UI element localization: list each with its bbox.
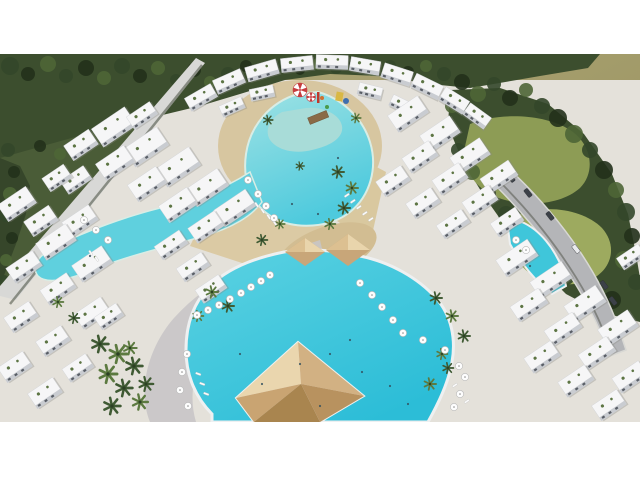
tree-blob bbox=[54, 148, 66, 160]
swimmer bbox=[261, 383, 263, 385]
tree-blob bbox=[565, 125, 583, 143]
swimmer bbox=[389, 385, 391, 387]
white-umbrella bbox=[184, 402, 191, 409]
tree-blob bbox=[624, 228, 640, 244]
tree-blob bbox=[487, 77, 501, 91]
white-umbrella bbox=[356, 279, 363, 286]
swimmer bbox=[89, 255, 91, 257]
white-umbrella bbox=[399, 329, 406, 336]
white-umbrella bbox=[247, 283, 254, 290]
tree-blob bbox=[502, 90, 518, 106]
swimmer bbox=[337, 157, 339, 159]
tree-blob bbox=[78, 60, 94, 76]
tree-blob bbox=[420, 60, 432, 72]
swimmer bbox=[529, 265, 531, 267]
swimmer bbox=[319, 405, 321, 407]
tree-blob bbox=[6, 232, 18, 244]
swimmer bbox=[317, 213, 319, 215]
white-umbrella bbox=[178, 368, 185, 375]
tree-blob bbox=[0, 254, 12, 266]
white-umbrella bbox=[419, 336, 426, 343]
tree-blob bbox=[617, 203, 635, 221]
swimmer bbox=[349, 339, 351, 341]
white-umbrella bbox=[389, 316, 396, 323]
tree-blob bbox=[114, 58, 130, 74]
white-umbrella bbox=[176, 386, 183, 393]
white-umbrella bbox=[104, 236, 111, 243]
tree-blob bbox=[608, 182, 624, 198]
white-umbrella bbox=[257, 277, 264, 284]
white-umbrella bbox=[461, 373, 468, 380]
swimmer bbox=[407, 403, 409, 405]
tree-blob bbox=[582, 142, 598, 158]
white-umbrella bbox=[204, 306, 211, 313]
white-umbrella bbox=[80, 216, 87, 223]
white-umbrella bbox=[226, 295, 233, 302]
tree-blob bbox=[549, 109, 567, 127]
white-umbrella bbox=[270, 214, 277, 221]
swimmer bbox=[291, 203, 293, 205]
white-umbrella bbox=[378, 303, 385, 310]
screenshot-page: { "image": { "kind": "aerial 3d architec… bbox=[0, 0, 640, 480]
tree-blob bbox=[470, 86, 486, 102]
swimmer bbox=[299, 363, 301, 365]
building-block bbox=[316, 54, 350, 71]
white-umbrella bbox=[183, 350, 190, 357]
tree-blob bbox=[1, 57, 19, 75]
swimmer bbox=[239, 353, 241, 355]
tree-blob bbox=[437, 67, 451, 81]
swimmer bbox=[361, 371, 363, 373]
letterbox-bottom bbox=[0, 422, 640, 480]
white-umbrella bbox=[215, 301, 222, 308]
tree-blob bbox=[534, 98, 550, 114]
white-umbrella bbox=[368, 291, 375, 298]
white-umbrella bbox=[262, 202, 269, 209]
white-umbrella bbox=[441, 346, 448, 353]
white-umbrella bbox=[254, 190, 261, 197]
swimmer bbox=[329, 353, 331, 355]
white-umbrella bbox=[455, 362, 462, 369]
tree-blob bbox=[519, 83, 533, 97]
red-striped-canopy bbox=[293, 83, 307, 97]
tree-blob bbox=[59, 69, 73, 83]
white-umbrella bbox=[244, 176, 251, 183]
letterbox-top bbox=[0, 0, 640, 54]
white-umbrella bbox=[456, 390, 463, 397]
white-umbrella bbox=[266, 271, 273, 278]
white-umbrella bbox=[193, 311, 200, 318]
tree-blob bbox=[8, 166, 20, 178]
tree-blob bbox=[21, 67, 35, 81]
white-umbrella bbox=[237, 289, 244, 296]
white-umbrella bbox=[92, 226, 99, 233]
tree-blob bbox=[34, 140, 46, 152]
tree-blob bbox=[133, 69, 147, 83]
tree-blob bbox=[595, 161, 613, 179]
white-umbrella bbox=[512, 236, 519, 243]
tree-blob bbox=[454, 74, 470, 90]
tree-blob bbox=[1, 143, 15, 157]
tree-blob bbox=[40, 56, 56, 72]
white-umbrella bbox=[450, 403, 457, 410]
resort-render-image bbox=[0, 54, 640, 422]
tree-blob bbox=[97, 71, 111, 85]
red-striped-canopy bbox=[307, 92, 316, 101]
tree-blob bbox=[151, 61, 165, 75]
white-umbrella bbox=[522, 246, 529, 253]
